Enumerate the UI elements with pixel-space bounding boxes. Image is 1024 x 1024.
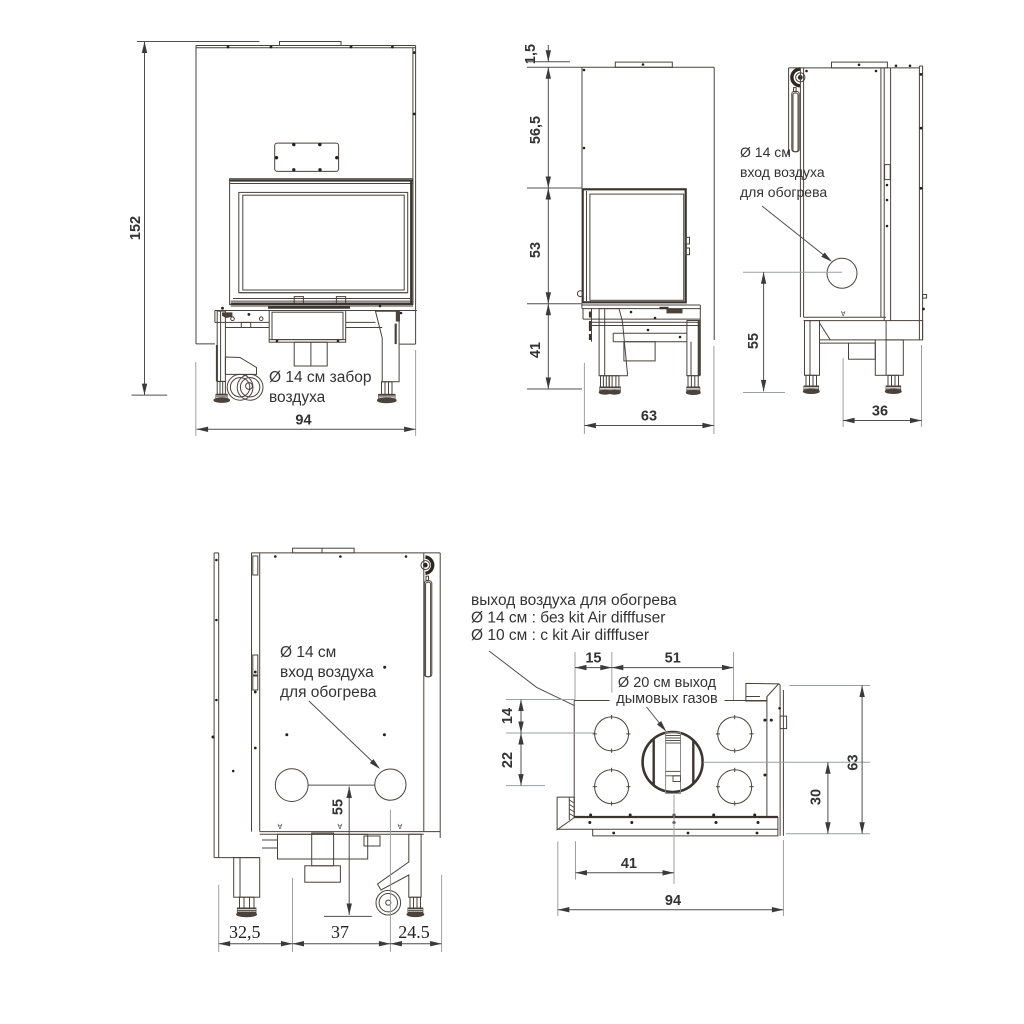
svg-text:63: 63 (641, 409, 657, 425)
svg-text:14: 14 (500, 708, 516, 724)
svg-text:37: 37 (331, 922, 349, 942)
svg-text:51: 51 (665, 651, 681, 667)
svg-text:Ø 14 см забор: Ø 14 см забор (269, 369, 371, 386)
svg-text:22: 22 (500, 752, 516, 768)
svg-text:36: 36 (872, 404, 888, 420)
svg-text:94: 94 (295, 413, 311, 429)
svg-text:94: 94 (665, 893, 681, 909)
svg-text:вход воздуха: вход воздуха (280, 664, 374, 681)
svg-text:63: 63 (845, 754, 861, 770)
svg-text:∀: ∀ (278, 823, 283, 831)
svg-text:Ø 14 см: Ø 14 см (280, 644, 336, 661)
svg-text:41: 41 (621, 856, 637, 872)
svg-text:вход воздуха: вход воздуха (740, 164, 825, 180)
svg-text:55: 55 (330, 799, 346, 815)
svg-text:дымовых газов: дымовых газов (616, 691, 718, 707)
svg-text:56,5: 56,5 (528, 116, 544, 144)
svg-text:41: 41 (528, 342, 544, 358)
svg-text:Ø 10 см : с kit Air difffuser: Ø 10 см : с kit Air difffuser (471, 627, 649, 644)
svg-text:∀: ∀ (398, 823, 403, 831)
svg-text:30: 30 (808, 789, 824, 805)
svg-text:32,5: 32,5 (229, 922, 261, 942)
svg-text:воздуха: воздуха (269, 389, 326, 406)
svg-text:24.5: 24.5 (398, 922, 430, 942)
svg-text:55: 55 (746, 333, 762, 349)
svg-text:1,5: 1,5 (523, 44, 539, 64)
svg-text:53: 53 (528, 242, 544, 258)
svg-text:∀: ∀ (841, 310, 846, 318)
svg-text:для обогрева: для обогрева (280, 684, 377, 701)
svg-text:Ø 14 см : без kit Air difffuse: Ø 14 см : без kit Air difffuser (471, 610, 665, 627)
svg-text:Ø 20 см выход: Ø 20 см выход (618, 675, 717, 691)
svg-text:152: 152 (128, 216, 144, 240)
svg-text:выход воздуха для обогрева: выход воздуха для обогрева (471, 592, 677, 609)
svg-text:∀: ∀ (338, 823, 343, 831)
svg-text:Ø 14 см: Ø 14 см (740, 144, 791, 160)
svg-text:для обогрева: для обогрева (740, 184, 827, 200)
svg-text:15: 15 (585, 651, 601, 667)
